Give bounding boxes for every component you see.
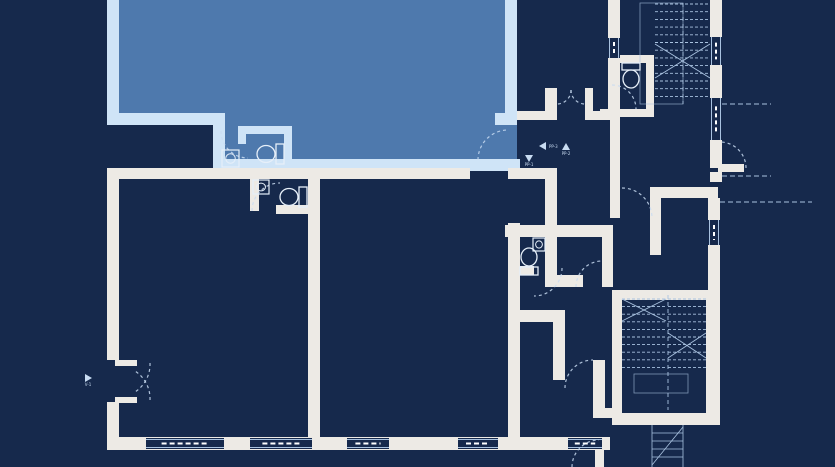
highlighted-unit-wall — [284, 126, 292, 172]
highlighted-unit-wall — [505, 0, 517, 125]
wall-segment — [553, 322, 565, 380]
marker-label: PP-2 — [562, 151, 571, 156]
window — [710, 98, 722, 140]
wall-segment — [710, 65, 722, 98]
wall-segment — [708, 245, 720, 292]
wall-segment — [612, 290, 718, 300]
window — [458, 438, 498, 449]
highlighted-unit-wall — [238, 126, 246, 144]
door-leaf — [115, 397, 137, 403]
wall-segment — [107, 168, 470, 179]
wall-segment — [517, 111, 545, 120]
door-leaf — [115, 360, 137, 366]
window — [608, 38, 620, 58]
wall-segment — [585, 88, 593, 120]
window — [250, 438, 312, 449]
door-leaf — [718, 164, 744, 172]
wall-segment — [308, 175, 320, 437]
window — [568, 438, 602, 449]
marker-label: PP-1 — [525, 162, 534, 167]
window — [146, 438, 224, 449]
wall-segment — [706, 290, 720, 425]
window — [347, 438, 389, 449]
wall-segment — [608, 58, 620, 110]
wall-segment — [710, 172, 722, 182]
wall-segment — [650, 195, 661, 255]
wall-segment — [612, 290, 622, 425]
wall-segment — [545, 168, 557, 275]
wall-segment — [610, 120, 620, 218]
wall-segment — [600, 408, 618, 418]
wall-segment — [600, 109, 654, 117]
wall-segment — [612, 413, 718, 425]
highlighted-unit-wall — [107, 0, 119, 125]
wall-segment — [708, 198, 720, 220]
wall-segment — [646, 55, 654, 117]
wall-segment — [710, 0, 722, 37]
wall-segment — [710, 140, 722, 168]
floor-plan-drawing: PP-3PP-2PP-1V-1 — [0, 0, 835, 467]
floor-plan-stage: PP-3PP-2PP-1V-1 — [0, 0, 835, 467]
window — [708, 220, 720, 245]
wall-segment — [545, 88, 557, 120]
marker-label: PP-3 — [549, 144, 558, 149]
wall-segment — [508, 310, 565, 322]
highlighted-unit-wall — [495, 113, 517, 125]
wall-segment — [505, 225, 613, 237]
wall-segment — [608, 0, 620, 38]
highlighted-unit-wall — [107, 113, 225, 125]
window — [710, 37, 722, 65]
wall-segment — [508, 223, 520, 437]
highlighted-unit-wall — [238, 126, 292, 134]
wall-segment — [107, 168, 119, 360]
marker-label: V-1 — [85, 382, 92, 387]
